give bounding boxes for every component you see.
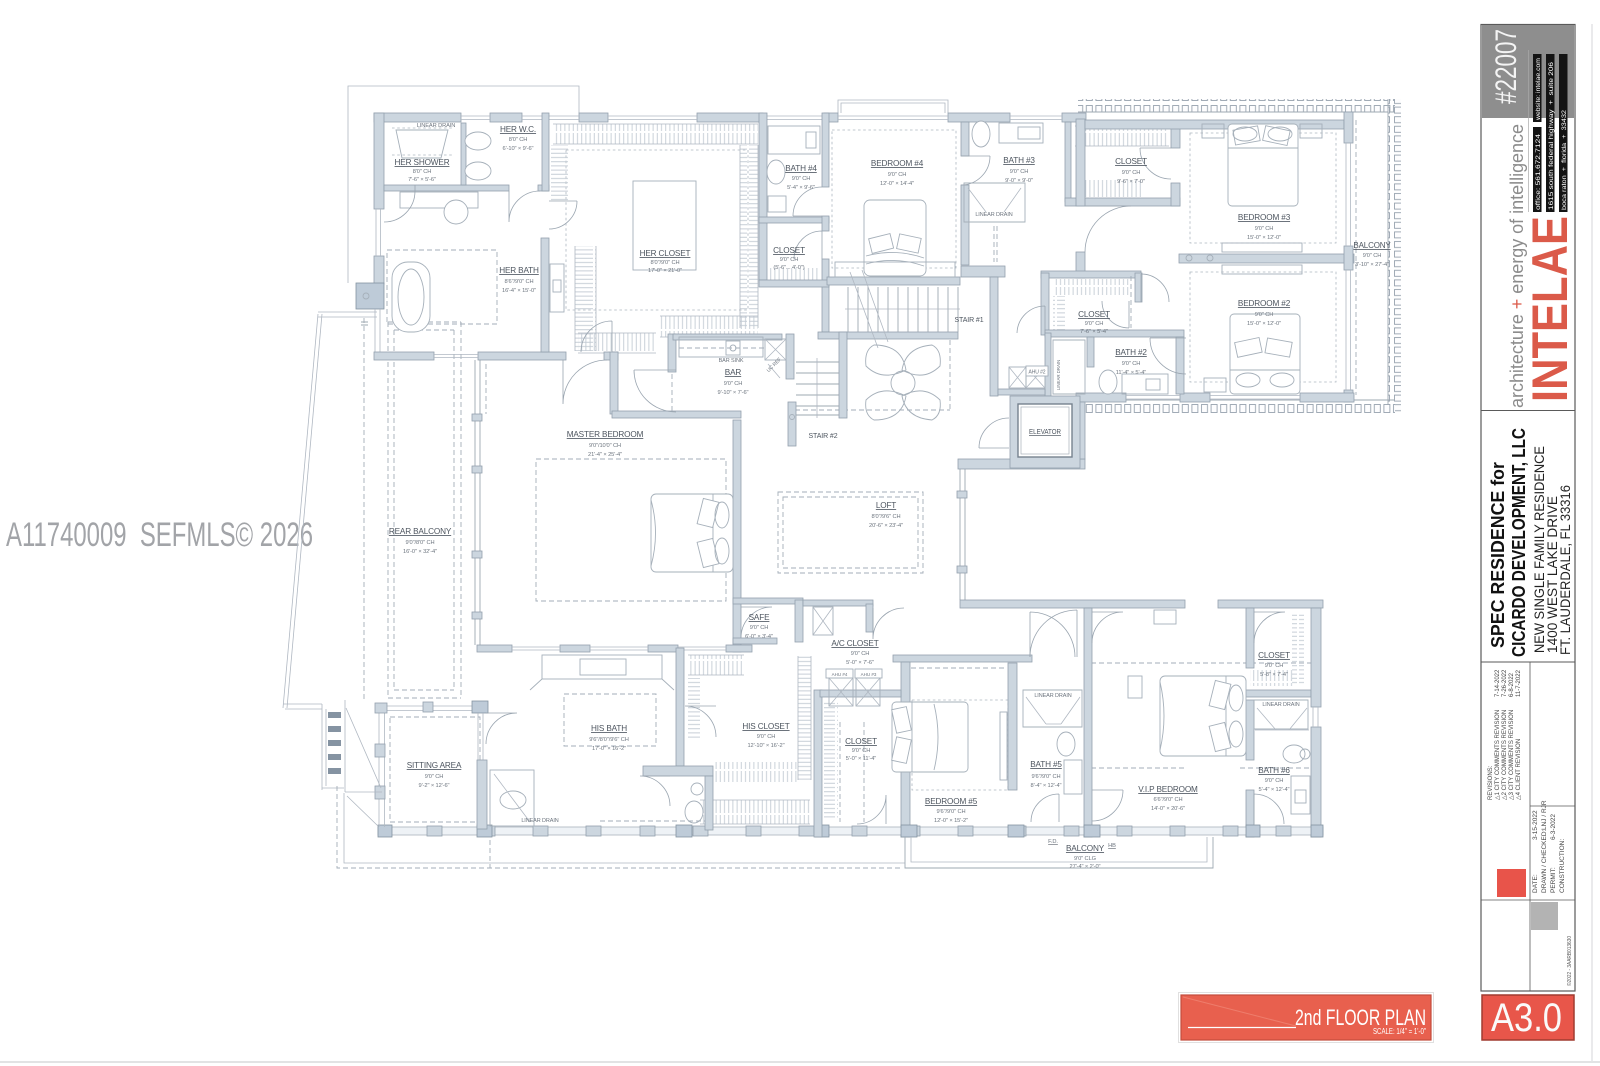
- svg-text:16'-4" × 15'-0": 16'-4" × 15'-0": [502, 288, 536, 294]
- svg-text:12'-0" × 14'-4": 12'-0" × 14'-4": [880, 181, 914, 187]
- svg-text:9'0" CH: 9'0" CH: [1122, 170, 1141, 176]
- svg-text:REVISIONS:: REVISIONS:: [1488, 765, 1494, 800]
- svg-text:HB: HB: [1108, 843, 1116, 849]
- svg-text:15'-0" × 12'-0": 15'-0" × 12'-0": [1247, 235, 1281, 241]
- svg-text:△1 CITY COMMENTS REVISION: △1 CITY COMMENTS REVISION: [1495, 710, 1501, 800]
- svg-text:6'-10" × 9'-6": 6'-10" × 9'-6": [503, 146, 534, 152]
- svg-text:9'0" CH: 9'0" CH: [1265, 778, 1284, 784]
- svg-text:9'0" CH: 9'0" CH: [792, 176, 811, 182]
- svg-text:11'-4" × 5'-4": 11'-4" × 5'-4": [1116, 370, 1147, 376]
- svg-text:BEDROOM #5: BEDROOM #5: [925, 797, 978, 806]
- svg-text:9'0" CH: 9'0" CH: [780, 257, 799, 263]
- svg-text:12'-10" × 16'-2": 12'-10" × 16'-2": [747, 743, 784, 749]
- svg-text:8'0" CH: 8'0" CH: [509, 137, 528, 143]
- svg-text:17'-0" × 21'-0": 17'-0" × 21'-0": [648, 268, 682, 274]
- svg-text:LINEAR DRAIN: LINEAR DRAIN: [1056, 360, 1061, 390]
- svg-text:8'0"/9'0" CH: 8'0"/9'0" CH: [650, 260, 679, 266]
- svg-text:LINEAR DRAIN: LINEAR DRAIN: [1262, 702, 1299, 708]
- svg-text:DATE:: DATE:: [1532, 874, 1539, 893]
- svg-text:STAIR #1: STAIR #1: [954, 317, 983, 324]
- svg-text:(5'-6"... 4'-0"): (5'-6"... 4'-0"): [773, 265, 804, 271]
- svg-text:BEDROOM #3: BEDROOM #3: [1238, 213, 1291, 222]
- svg-text:BALCONY: BALCONY: [1066, 844, 1105, 853]
- svg-text:9'0" CH: 9'0" CH: [1265, 663, 1284, 669]
- svg-text:SAFE: SAFE: [749, 613, 770, 622]
- svg-text:BATH #5: BATH #5: [1030, 760, 1062, 769]
- svg-text:8'6"/9'0" CH: 8'6"/9'0" CH: [504, 279, 533, 285]
- svg-text:9'6"/8'0"/9'6" CH: 9'6"/8'0"/9'6" CH: [589, 737, 629, 743]
- svg-text:HER CLOSET: HER CLOSET: [640, 249, 691, 258]
- svg-text:6-3-2022: 6-3-2022: [1550, 814, 1557, 840]
- svg-text:△2 CITY COMMENTS REVISION: △2 CITY COMMENTS REVISION: [1502, 710, 1508, 800]
- svg-text:27'-4" × 2'-0": 27'-4" × 2'-0": [1070, 864, 1101, 870]
- svg-text:office: 561.672.7124: office: 561.672.7124: [1535, 134, 1542, 210]
- svg-text:9'0" CH: 9'0" CH: [1255, 312, 1274, 318]
- svg-text:LOFT: LOFT: [876, 501, 896, 510]
- svg-text:LNJ / RJR: LNJ / RJR: [1541, 800, 1548, 830]
- svg-text:9'-6" × 7'-0": 9'-6" × 7'-0": [1117, 179, 1145, 185]
- svg-text:6-8-2022: 6-8-2022: [1509, 672, 1515, 697]
- svg-text:CLOSET: CLOSET: [1078, 310, 1110, 319]
- svg-text:ELEVATOR: ELEVATOR: [1029, 429, 1061, 436]
- svg-text:BAR SINK: BAR SINK: [719, 358, 744, 364]
- svg-text:CLOSET: CLOSET: [1115, 157, 1147, 166]
- svg-text:9'0"/10'0" CH: 9'0"/10'0" CH: [589, 443, 621, 449]
- svg-text:BATH #2: BATH #2: [1115, 348, 1147, 357]
- svg-text:7-14-2022: 7-14-2022: [1495, 669, 1501, 697]
- svg-text:AHU #3: AHU #3: [861, 672, 877, 677]
- svg-text:SITTING AREA: SITTING AREA: [407, 761, 462, 770]
- svg-text:BATH #6: BATH #6: [1258, 766, 1290, 775]
- svg-text:7'-6" × 5'-4": 7'-6" × 5'-4": [1080, 329, 1108, 335]
- svg-text:5'-4" × 12'-4": 5'-4" × 12'-4": [1259, 787, 1290, 793]
- svg-text:HIS CLOSET: HIS CLOSET: [742, 722, 789, 731]
- svg-text:9'-2" × 12'-6": 9'-2" × 12'-6": [419, 783, 450, 789]
- svg-text:boca raton + florida + 334: boca raton + florida + 33432: [1561, 110, 1568, 210]
- svg-text:5'-4" × 9'-6": 5'-4" × 9'-6": [787, 185, 815, 191]
- svg-text:AHU #4: AHU #4: [832, 672, 848, 677]
- svg-text:5'-0" × 11'-4": 5'-0" × 11'-4": [846, 756, 877, 762]
- svg-text:9'0" CH: 9'0" CH: [1363, 253, 1382, 259]
- svg-text:9'0" CH: 9'0" CH: [757, 734, 776, 740]
- svg-text:LINEAR DRAIN: LINEAR DRAIN: [417, 123, 456, 129]
- svg-text:CLOSET: CLOSET: [773, 246, 805, 255]
- svg-text:DRAWN / CHECKED:: DRAWN / CHECKED:: [1541, 829, 1548, 893]
- svg-text:BATH #4: BATH #4: [785, 164, 817, 173]
- svg-text:9'6"/9'0" CH: 9'6"/9'0" CH: [1031, 774, 1060, 780]
- svg-text:F.D.: F.D.: [1048, 839, 1058, 845]
- svg-text:HER BATH: HER BATH: [499, 266, 539, 275]
- svg-text:9'6"/9'0" CH: 9'6"/9'0" CH: [936, 809, 965, 815]
- svg-text:LINEAR DRAIN: LINEAR DRAIN: [1034, 693, 1071, 699]
- svg-text:8'-4" × 12'-4": 8'-4" × 12'-4": [1031, 783, 1062, 789]
- svg-text:CLOSET: CLOSET: [1258, 651, 1290, 660]
- svg-text:9'0" CH: 9'0" CH: [1122, 361, 1141, 367]
- svg-text:SCALE: 1/4" = 1'-0": SCALE: 1/4" = 1'-0": [1373, 1027, 1426, 1036]
- svg-text:BATH #3: BATH #3: [1003, 156, 1035, 165]
- svg-text:BALCONY: BALCONY: [1353, 241, 1391, 250]
- svg-text:HER SHOWER: HER SHOWER: [395, 158, 450, 167]
- svg-text:9'0"/8'0" CH: 9'0"/8'0" CH: [405, 540, 434, 546]
- svg-text:20'-6" × 23'-4": 20'-6" × 23'-4": [869, 523, 903, 529]
- svg-text:9'0" CH: 9'0" CH: [425, 774, 444, 780]
- svg-text:3-15-2022: 3-15-2022: [1532, 810, 1539, 840]
- svg-text:architecture + energy of intel: architecture + energy of intelligence: [1507, 124, 1527, 408]
- svg-text:14'-0" × 20'-6": 14'-0" × 20'-6": [1151, 806, 1185, 812]
- svg-text:15'-0" × 12'-0": 15'-0" × 12'-0": [1247, 321, 1281, 327]
- svg-text:5'-0" × 7'-6": 5'-0" × 7'-6": [846, 660, 874, 666]
- svg-text:LINEAR DRAIN: LINEAR DRAIN: [521, 818, 558, 824]
- svg-text:5'-8" × 7'-4": 5'-8" × 7'-4": [1260, 672, 1288, 678]
- svg-text:9'0" CH: 9'0" CH: [1255, 226, 1274, 232]
- svg-text:7-26-2022: 7-26-2022: [1502, 669, 1508, 697]
- svg-text:SPEC RESIDENCE for: SPEC RESIDENCE for: [1488, 462, 1508, 648]
- svg-text:PERMIT:: PERMIT:: [1550, 867, 1557, 893]
- svg-text:BEDROOM #4: BEDROOM #4: [871, 159, 924, 168]
- svg-text:9'0" CH: 9'0" CH: [1085, 321, 1104, 327]
- svg-text:STAIR #2: STAIR #2: [808, 433, 837, 440]
- svg-text:BEDROOM #2: BEDROOM #2: [1238, 299, 1291, 308]
- svg-text:△3 CITY COMMENTS REVISION: △3 CITY COMMENTS REVISION: [1509, 710, 1515, 800]
- svg-text:17'-0" × 16'-2": 17'-0" × 16'-2": [592, 746, 626, 752]
- svg-text:16'-0" × 32'-4": 16'-0" × 32'-4": [403, 549, 437, 555]
- svg-text:website: intelae.com: website: intelae.com: [1535, 58, 1542, 121]
- svg-text:CLOSET: CLOSET: [845, 737, 877, 746]
- svg-text:A11740009 SEFMLS© 2026: A11740009 SEFMLS© 2026: [6, 516, 313, 554]
- svg-text:INTELAE: INTELAE: [1522, 216, 1578, 402]
- svg-text:9'0" CH: 9'0" CH: [750, 625, 769, 631]
- svg-text:6'-0" × 3'-4": 6'-0" × 3'-4": [745, 634, 773, 640]
- svg-text:9'0" CH: 9'0" CH: [852, 748, 871, 754]
- svg-text:1615 south federal highway +: 1615 south federal highway + suite 206: [1548, 62, 1555, 210]
- svg-text:9'0" CH: 9'0" CH: [724, 381, 743, 387]
- svg-text:12'-0" × 15'-2": 12'-0" × 15'-2": [934, 818, 968, 824]
- svg-text:6'6"/9'0" CH: 6'6"/9'0" CH: [1153, 797, 1182, 803]
- svg-text:9'0" CH: 9'0" CH: [1010, 169, 1029, 175]
- svg-text:LINEAR DRAIN: LINEAR DRAIN: [975, 212, 1012, 218]
- svg-text:9'-10" × 7'-6": 9'-10" × 7'-6": [718, 390, 749, 396]
- svg-text:21'-4" × 25'-4": 21'-4" × 25'-4": [588, 452, 622, 458]
- svg-text:A/C CLOSET: A/C CLOSET: [831, 639, 878, 648]
- svg-text:9'-0" × 9'-0": 9'-0" × 9'-0": [1005, 178, 1033, 184]
- svg-text:9'0" CH: 9'0" CH: [851, 651, 870, 657]
- svg-text:7'-6" × 5'-6": 7'-6" × 5'-6": [408, 177, 436, 183]
- svg-text:FT. LAUDERDALE, FL 33316: FT. LAUDERDALE, FL 33316: [1558, 485, 1573, 655]
- svg-text:©2022 - 3AARB013630: ©2022 - 3AARB013630: [1566, 936, 1573, 986]
- svg-text:9'0" CH: 9'0" CH: [888, 172, 907, 178]
- svg-text:HIS BATH: HIS BATH: [591, 724, 627, 733]
- svg-text:A3.0: A3.0: [1491, 996, 1562, 1040]
- svg-text:CONSTRUCTION:: CONSTRUCTION:: [1559, 839, 1566, 893]
- svg-text:8'0"/9'6" CH: 8'0"/9'6" CH: [871, 514, 900, 520]
- svg-text:11-7-2022: 11-7-2022: [1516, 669, 1522, 697]
- svg-text:9'0" CLG: 9'0" CLG: [1074, 856, 1096, 862]
- svg-text:HER W.C.: HER W.C.: [500, 125, 536, 134]
- svg-text:V.I.P BEDROOM: V.I.P BEDROOM: [1138, 785, 1198, 794]
- svg-text:MASTER BEDROOM: MASTER BEDROOM: [567, 430, 644, 439]
- svg-text:8'0" CH: 8'0" CH: [413, 169, 432, 175]
- svg-text:BAR: BAR: [725, 368, 742, 377]
- svg-text:3'-10" × 27'-4": 3'-10" × 27'-4": [1355, 262, 1389, 268]
- svg-text:#22007: #22007: [1490, 29, 1523, 104]
- svg-text:△4 CLIENT REVISION: △4 CLIENT REVISION: [1516, 739, 1522, 800]
- svg-text:AHU #2: AHU #2: [1029, 370, 1046, 376]
- svg-text:REAR BALCONY: REAR BALCONY: [389, 527, 452, 536]
- svg-text:CICARDO DEVELOPMENT, LLC: CICARDO DEVELOPMENT, LLC: [1509, 428, 1529, 657]
